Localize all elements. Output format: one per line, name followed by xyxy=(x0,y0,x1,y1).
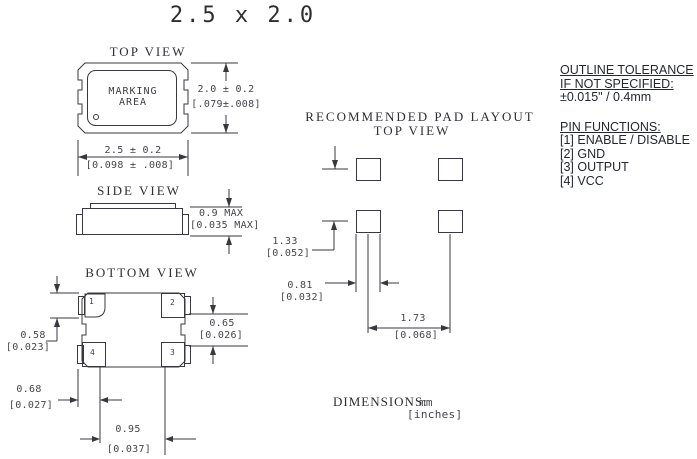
dim-height-in: [.079±.008] xyxy=(191,99,261,110)
pad-layout-label-line1: RECOMMENDED PAD LAYOUT xyxy=(305,110,534,124)
pin-function-1: [1] ENABLE / DISABLE xyxy=(560,134,697,148)
drawing-sheet: 2.5 x 2.0 TOP VIEW MARKING AREA 2.0 ± 0.… xyxy=(0,0,697,459)
dim-layout-pad-width-mm: 0.81 xyxy=(287,280,312,291)
notes-column: OUTLINE TOLERANCE IF NOT SPECIFIED: ±0.0… xyxy=(560,64,697,188)
pad-1 xyxy=(85,294,105,317)
side-view-label: SIDE VIEW xyxy=(97,184,181,198)
units-note-mm: mm xyxy=(419,397,433,408)
bottom-view-dimension-lines xyxy=(46,276,248,455)
pin-function-4: [4] VCC xyxy=(560,175,697,189)
pad-number-1: 1 xyxy=(89,297,94,306)
outline-tolerance-value: ±0.015" / 0.4mm xyxy=(560,91,697,105)
dim-thickness-in: [0.035 MAX] xyxy=(190,220,260,231)
pad-layout-label-line2: TOP VIEW xyxy=(374,124,451,138)
page-title: 2.5 x 2.0 xyxy=(170,4,316,28)
dim-pad-span-mm: 0.95 xyxy=(115,424,140,435)
outline-tolerance-heading-line2: IF NOT SPECIFIED: xyxy=(560,78,697,92)
dim-width-mm: 2.5 ± 0.2 xyxy=(105,145,162,156)
dim-width-in: [0.098 ± .008] xyxy=(86,160,175,171)
bottom-view-label: BOTTOM VIEW xyxy=(85,266,199,280)
dim-pad-width-mm: 0.68 xyxy=(16,384,41,395)
pad-number-4: 4 xyxy=(90,348,95,357)
side-view-drawing xyxy=(77,204,189,235)
pin1-indicator-dot xyxy=(94,115,99,120)
outline-tolerance-heading-line1: OUTLINE TOLERANCE xyxy=(560,64,697,78)
dim-pad-span-in: [0.037] xyxy=(107,444,151,455)
dim-pad-gap-mm: 0.65 xyxy=(209,318,234,329)
pin-function-3: [3] OUTPUT xyxy=(560,161,697,175)
dim-row-pitch-mm: 1.33 xyxy=(272,236,297,247)
dim-row-pitch-in: [0.052] xyxy=(266,248,310,259)
pin-function-2: [2] GND xyxy=(560,148,697,162)
dim-height-mm: 2.0 ± 0.2 xyxy=(198,84,255,95)
top-view-label: TOP VIEW xyxy=(110,45,187,59)
dim-pad-gap-in: [0.026] xyxy=(199,330,243,341)
dim-col-pitch-in: [0.068] xyxy=(394,330,438,341)
dim-pad-height-in: [0.023] xyxy=(6,342,50,353)
dim-pad-width-in: [0.027] xyxy=(9,400,53,411)
dim-col-pitch-mm: 1.73 xyxy=(400,313,425,324)
dim-pad-height-mm: 0.58 xyxy=(20,330,45,341)
notes-spacer xyxy=(560,105,697,121)
units-note-inches: [inches] xyxy=(407,409,462,420)
pin-functions-heading: PIN FUNCTIONS: xyxy=(560,121,697,135)
pad-number-2: 2 xyxy=(170,298,175,307)
pad-layout-drawing xyxy=(357,159,463,233)
dim-thickness-mm: 0.9 MAX xyxy=(199,208,243,219)
units-note-label: DIMENSIONS: xyxy=(333,395,428,409)
dim-layout-pad-width-in: [0.032] xyxy=(280,292,324,303)
marking-area: MARKING AREA xyxy=(108,86,157,108)
pad-number-3: 3 xyxy=(170,348,175,357)
